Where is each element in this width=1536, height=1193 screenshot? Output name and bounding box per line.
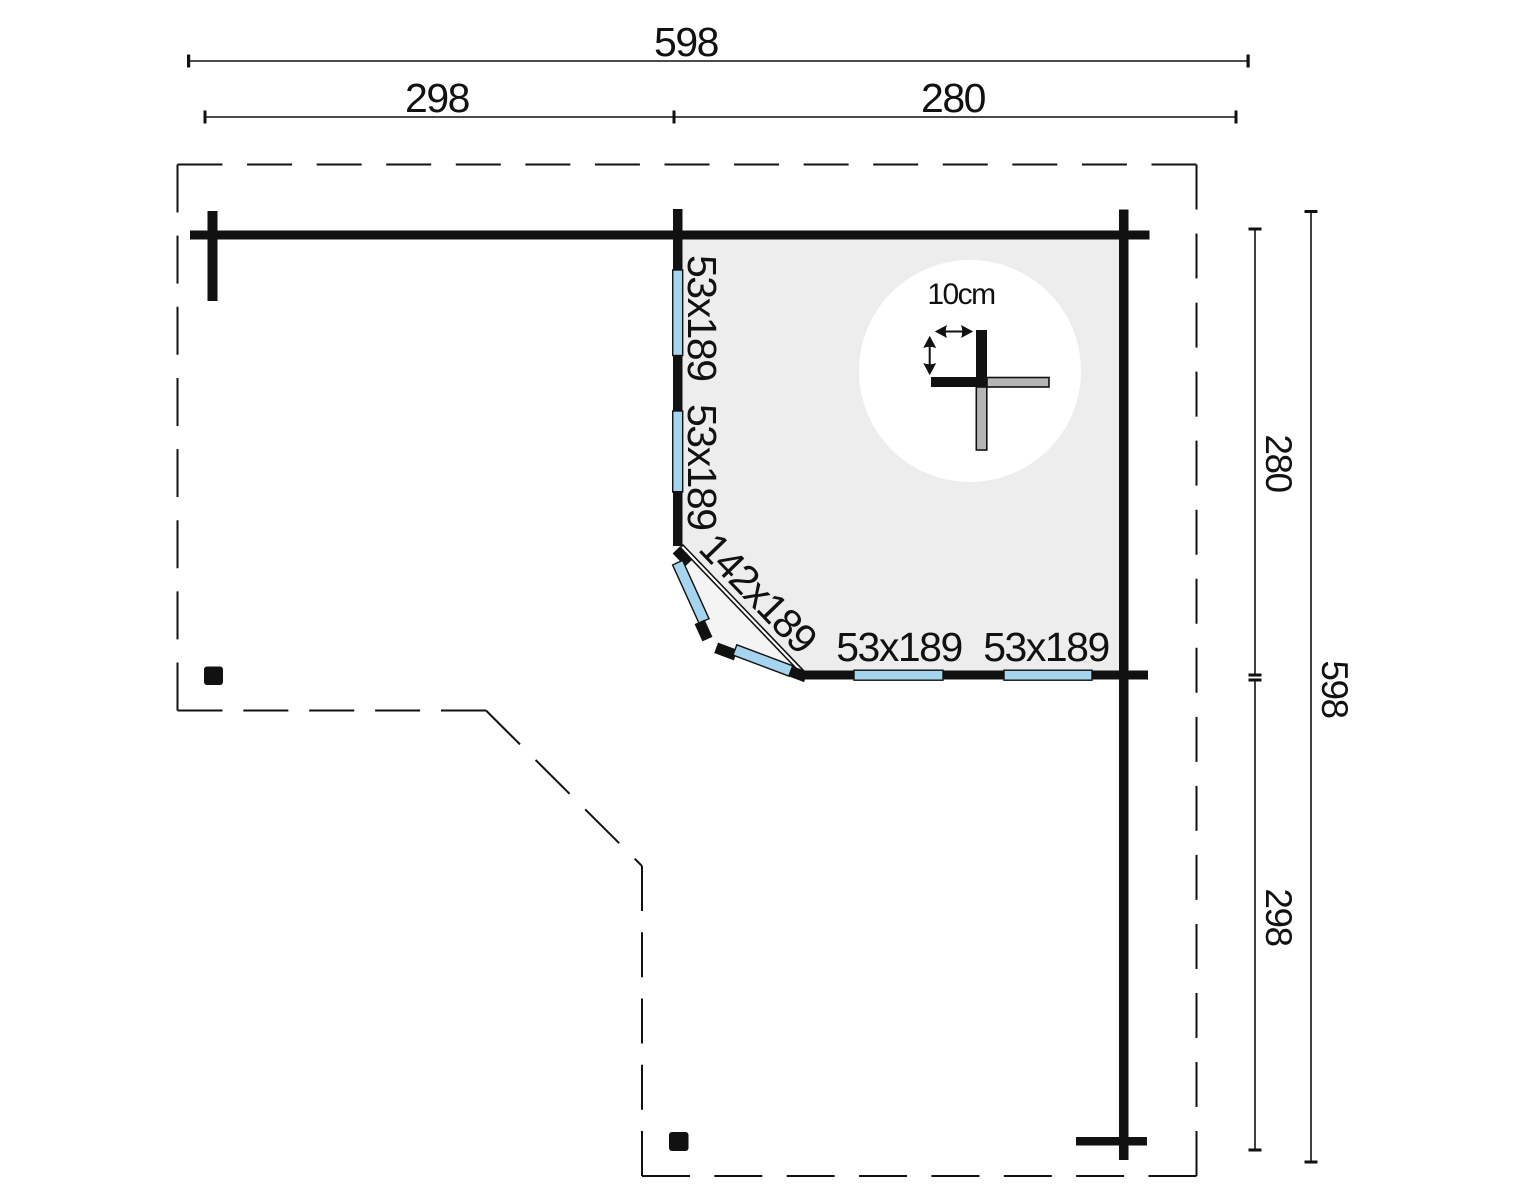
svg-text:53x189: 53x189 (983, 624, 1109, 670)
svg-text:598: 598 (654, 19, 719, 65)
svg-text:298: 298 (1258, 888, 1299, 945)
svg-text:53x189: 53x189 (836, 624, 962, 670)
svg-text:280: 280 (921, 75, 986, 121)
svg-text:53x189: 53x189 (679, 404, 725, 530)
svg-text:53x189: 53x189 (679, 255, 725, 381)
svg-text:280: 280 (1258, 434, 1299, 492)
svg-text:10cm: 10cm (927, 278, 995, 311)
svg-text:298: 298 (405, 75, 470, 121)
svg-text:598: 598 (1314, 660, 1355, 717)
